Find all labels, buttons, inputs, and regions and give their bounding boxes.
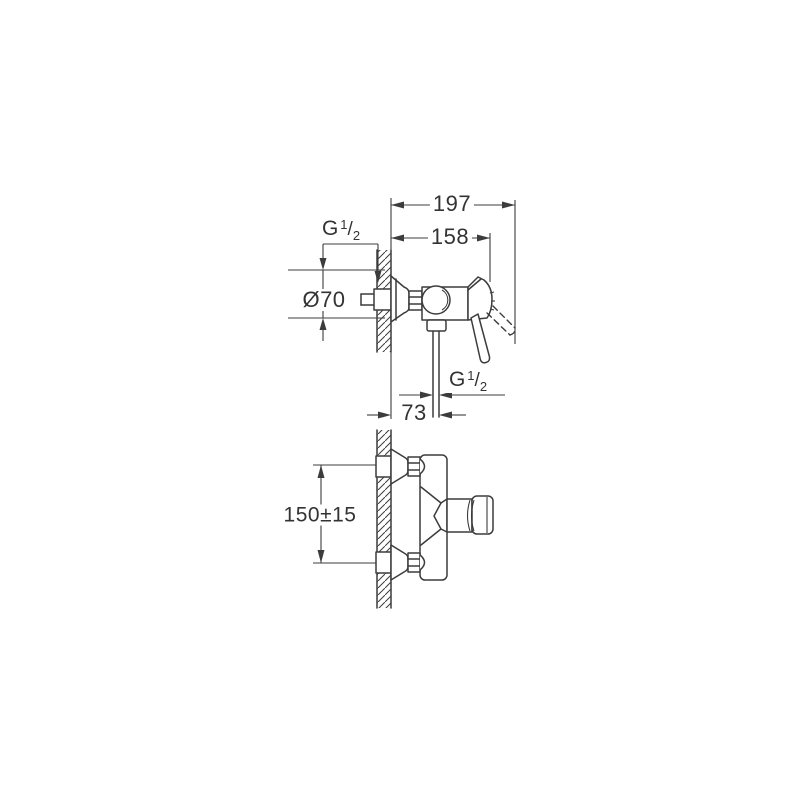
dim-label-overall-depth: 197 — [430, 193, 474, 215]
thread-sub: 2 — [353, 228, 360, 243]
dim-label-flange-diameter: Ø70 — [299, 289, 348, 311]
thread-sup: 1 — [467, 368, 474, 383]
lever-handle — [471, 314, 490, 363]
handle-housing — [468, 277, 495, 320]
dim-label-body-depth: 158 — [428, 226, 472, 248]
spout-plan — [447, 496, 493, 534]
thread-sub: 2 — [480, 379, 487, 394]
dim-label-inlet-spacing: 150±15 — [281, 505, 360, 526]
dim-label-outlet-offset: 73 — [398, 402, 429, 424]
hex-nut — [409, 291, 422, 310]
dim-label-outlet-thread: G1/2 — [446, 369, 490, 393]
thread-sup: 1 — [340, 217, 347, 232]
outlet-flange — [427, 320, 446, 331]
dim-label-inlet-thread: G1/2 — [319, 218, 363, 242]
technical-drawing — [0, 0, 800, 800]
thread-prefix: G — [322, 217, 338, 240]
wall-union-nut — [374, 289, 391, 310]
inlet-thread-leader — [320, 244, 382, 283]
product-spec-page: 197 158 G1/2 Ø70 G1/2 73 150±15 — [0, 0, 800, 800]
cartridge-dome — [422, 286, 450, 314]
escutcheon-flange — [391, 276, 409, 322]
thread-prefix: G — [449, 368, 465, 391]
outlet-pipe — [433, 328, 439, 417]
